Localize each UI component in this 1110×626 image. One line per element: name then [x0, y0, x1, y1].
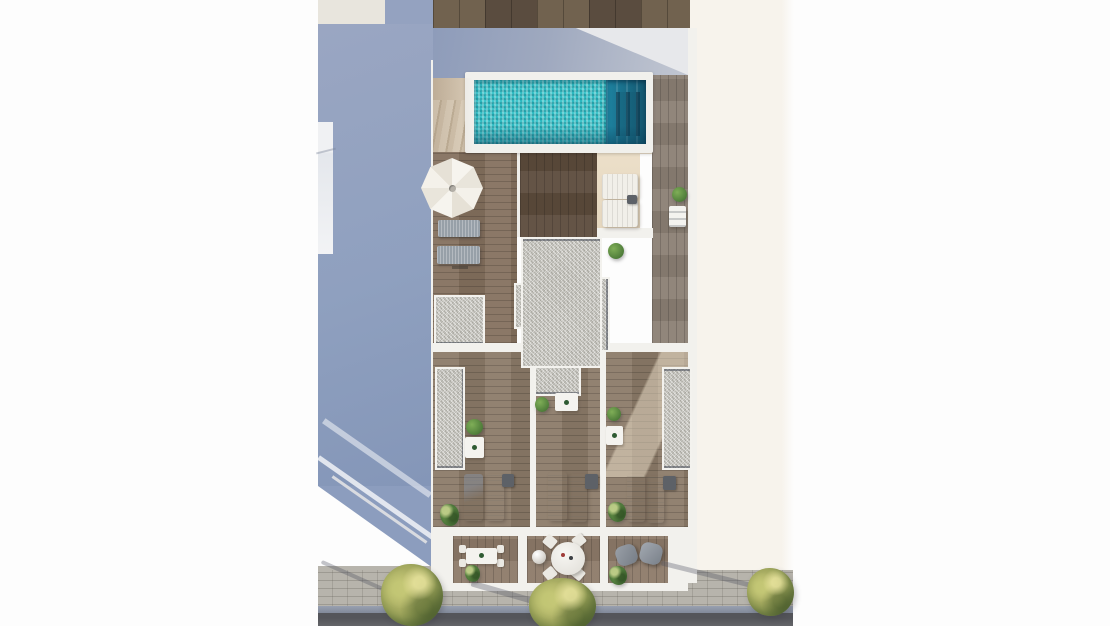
sun-lounger-white	[602, 200, 638, 227]
potted-bush	[608, 243, 624, 259]
table-plant	[479, 553, 484, 558]
dining-chair	[497, 545, 504, 553]
neighbor-roof-wood-strip	[433, 0, 690, 28]
dining-chair	[459, 545, 466, 553]
neighbor-ground-cream	[690, 0, 794, 572]
potted-bush	[672, 187, 687, 202]
sun-lounger-grey	[438, 220, 480, 237]
round-table	[551, 542, 585, 575]
street-tree	[747, 568, 794, 616]
render-canvas	[0, 0, 1110, 626]
street-tree	[529, 578, 596, 626]
table-setting	[561, 553, 565, 557]
table-plant	[472, 445, 477, 450]
sphere-lamp	[532, 550, 546, 564]
terrace-lounger	[464, 474, 483, 521]
mid-wall-band	[597, 228, 653, 238]
building-shadow-top	[385, 0, 433, 26]
terrace-lounger	[647, 476, 664, 523]
corner-shrub	[465, 565, 480, 582]
terrace-lounger	[548, 472, 567, 521]
corner-shrub	[608, 502, 626, 522]
gravel-core-main	[521, 237, 602, 368]
side-table	[663, 476, 676, 490]
patio-side-wall	[668, 536, 688, 583]
potted-bush	[535, 397, 549, 412]
terrace-gravel-panel	[662, 367, 692, 470]
terrace-gravel-panel	[435, 367, 465, 470]
side-table	[585, 474, 598, 489]
patio-wall	[600, 536, 608, 583]
pool-floor-shadow	[474, 126, 646, 144]
dining-chair	[459, 559, 466, 567]
potted-bush	[607, 407, 621, 421]
building-shadow-main	[318, 24, 433, 486]
corner-shrub	[609, 566, 627, 585]
table-plant	[612, 433, 617, 438]
table-plant	[564, 400, 569, 405]
table-setting	[569, 556, 573, 560]
patio-divider-band	[433, 527, 688, 536]
parapet-shade	[433, 78, 473, 154]
bistro-table	[669, 206, 686, 227]
white-pillar	[318, 122, 333, 254]
building-right-wall	[688, 28, 697, 583]
dark-wood-patch	[517, 152, 600, 237]
side-table	[627, 195, 637, 204]
side-table	[502, 474, 514, 487]
gravel-roof-panel	[434, 295, 485, 346]
street-tree	[381, 564, 443, 626]
dining-chair	[497, 559, 504, 567]
patio-wall	[518, 536, 527, 583]
neighbor-parapet-top	[318, 0, 385, 24]
terrace-lounger	[627, 474, 645, 522]
lounger-leg-shadow	[452, 266, 468, 269]
sun-lounger-grey	[437, 246, 480, 264]
parasol-pole	[449, 185, 456, 192]
potted-bush	[466, 419, 483, 435]
corner-shrub	[440, 504, 459, 526]
